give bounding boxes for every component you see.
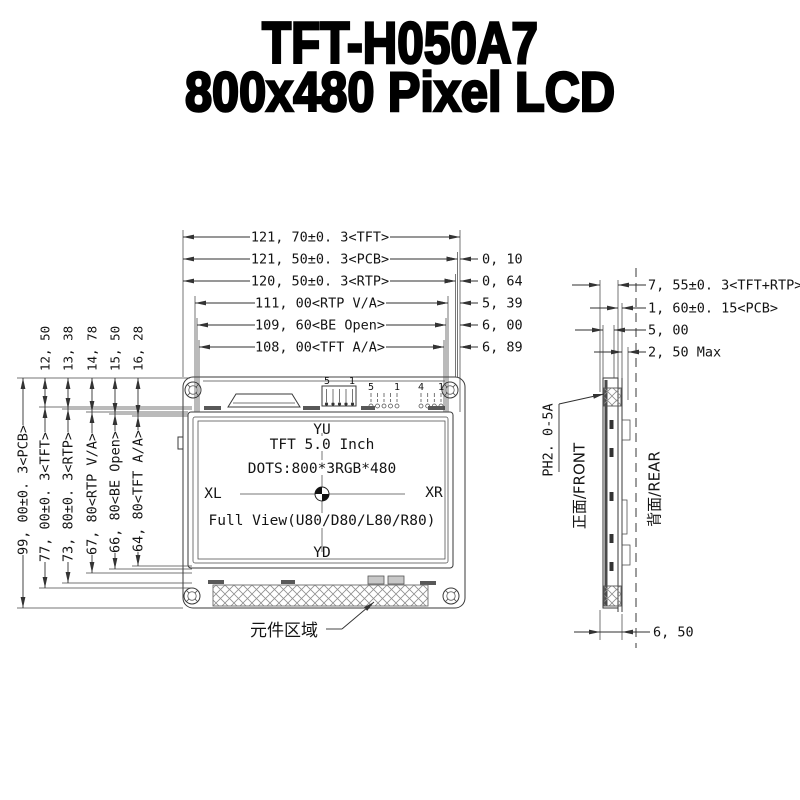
dim-label-5-00: 5, 00 bbox=[648, 323, 689, 339]
component-area-hatch bbox=[213, 585, 428, 606]
center-mark-icon bbox=[315, 487, 329, 501]
dim-label-height-rtp-va: 67, 80<RTP V/A> bbox=[85, 433, 101, 555]
dim-label-13-38: 13, 38 bbox=[61, 326, 76, 371]
pcb-edge-lines bbox=[618, 378, 622, 612]
dim-label-width-be-open: 109, 60<BE Open> bbox=[255, 318, 385, 334]
drawing-title: TFT-H050A7 800x480 Pixel LCD bbox=[185, 11, 615, 123]
screen-axis-yd: YD bbox=[313, 545, 330, 561]
screw-hole-icon bbox=[442, 382, 458, 398]
solder-pad bbox=[204, 406, 221, 410]
screen-axis-xl: XL bbox=[204, 486, 222, 502]
pin-number: 4 bbox=[418, 382, 424, 393]
pin-number: 5 bbox=[324, 376, 330, 387]
dim-label-height-be-open: 66, 80<BE Open> bbox=[108, 431, 124, 553]
dim-label-14-78: 14, 78 bbox=[85, 326, 100, 371]
front-view: 5 1 5 1 4 1 bbox=[178, 376, 465, 608]
side-view: 7, 55±0. 3<TFT+RTP> 1, 60±0. 15<PCB> 5, … bbox=[541, 268, 800, 648]
screw-hole-icon bbox=[184, 588, 200, 604]
pin-header-block: 5 1 bbox=[322, 376, 356, 406]
pin-number: 1 bbox=[394, 382, 400, 393]
connector-hatch-top bbox=[604, 388, 621, 406]
drawing-page: TFT-H050A7 800x480 Pixel LCD bbox=[0, 0, 800, 800]
ph-connector-label: PH2. 0-5A bbox=[541, 403, 557, 476]
left-dimensions: 12, 50 13, 38 14, 78 15, 50 16, 28 99, 0… bbox=[16, 326, 193, 608]
screw-hole-icon bbox=[443, 588, 459, 604]
dim-offset-6-89: 6, 89 bbox=[482, 340, 523, 356]
screen-dots-text: DOTS:800*3RGB*480 bbox=[248, 461, 396, 477]
pcb-left-tab bbox=[178, 437, 183, 449]
dim-label-width-tft: 121, 70±0. 3<TFT> bbox=[251, 230, 389, 246]
screen-markings: YU TFT 5.0 Inch DOTS:800*3RGB*480 XL XR … bbox=[204, 422, 443, 561]
lcd-mechanical-drawing: TFT-H050A7 800x480 Pixel LCD bbox=[0, 0, 800, 800]
rear-side-label: 背面/REAR bbox=[646, 451, 664, 527]
component-area-label: 元件区域 bbox=[250, 621, 318, 641]
dim-label-15-50: 15, 50 bbox=[108, 326, 123, 371]
dim-label-height-tft: 77, 00±0. 3<TFT> bbox=[38, 432, 54, 562]
dim-label-thickness-total: 7, 55±0. 3<TFT+RTP> bbox=[648, 278, 800, 294]
dim-label-2-50-max: 2, 50 Max bbox=[648, 345, 721, 361]
pin-number: 1 bbox=[438, 382, 444, 393]
screw-hole-icon bbox=[185, 382, 201, 398]
fpc-connector bbox=[228, 394, 300, 407]
solder-pad bbox=[420, 581, 436, 585]
dim-offset-6-00: 6, 00 bbox=[482, 318, 523, 334]
rear-tabs bbox=[622, 420, 630, 565]
pin-number: 1 bbox=[349, 376, 355, 387]
dim-label-width-tft-aa: 108, 00<TFT A/A> bbox=[255, 340, 385, 356]
dim-label-thickness-pcb: 1, 60±0. 15<PCB> bbox=[648, 301, 778, 317]
connector-hatch-bottom bbox=[604, 586, 621, 606]
dim-offset-5-39: 5, 39 bbox=[482, 296, 523, 312]
screen-view-text: Full View(U80/D80/L80/R80) bbox=[209, 513, 436, 529]
screen-axis-yu: YU bbox=[313, 422, 330, 438]
connector-tab bbox=[388, 576, 404, 584]
glass-edge bbox=[605, 380, 608, 606]
pin-pad-group: 4 1 bbox=[418, 382, 444, 408]
dim-label-width-rtp: 120, 50±0. 3<RTP> bbox=[251, 274, 389, 290]
dim-label-6-50: 6, 50 bbox=[653, 625, 694, 641]
dim-label-height-rtp: 73, 80±0. 3<RTP> bbox=[61, 432, 77, 562]
dim-label-12-50: 12, 50 bbox=[38, 326, 53, 371]
component-marks bbox=[610, 420, 614, 571]
pin-pad-group: 5 1 bbox=[368, 382, 400, 408]
solder-pad bbox=[208, 580, 224, 584]
dim-label-height-pcb: 99, 00±0. 3<PCB> bbox=[16, 425, 32, 555]
connector-tab bbox=[368, 576, 384, 584]
front-side-label: 正面/FRONT bbox=[571, 442, 589, 529]
dim-offset-0-64: 0, 64 bbox=[482, 274, 523, 290]
pin-number: 5 bbox=[368, 382, 374, 393]
solder-pad bbox=[361, 406, 375, 410]
solder-pad bbox=[303, 406, 320, 410]
dim-label-16-28: 16, 28 bbox=[131, 326, 146, 371]
dim-label-height-tft-aa: 64, 80<TFT A/A> bbox=[131, 430, 147, 552]
screen-size-text: TFT 5.0 Inch bbox=[270, 437, 375, 453]
solder-pad bbox=[428, 406, 445, 410]
title-line2: 800x480 Pixel LCD bbox=[185, 60, 615, 123]
dim-label-width-pcb: 121, 50±0. 3<PCB> bbox=[251, 252, 389, 268]
dim-offset-0-10: 0, 10 bbox=[482, 252, 523, 268]
solder-pad bbox=[281, 580, 295, 584]
dim-label-width-rtp-va: 111, 00<RTP V/A> bbox=[255, 296, 385, 312]
screen-axis-xr: XR bbox=[425, 485, 443, 501]
